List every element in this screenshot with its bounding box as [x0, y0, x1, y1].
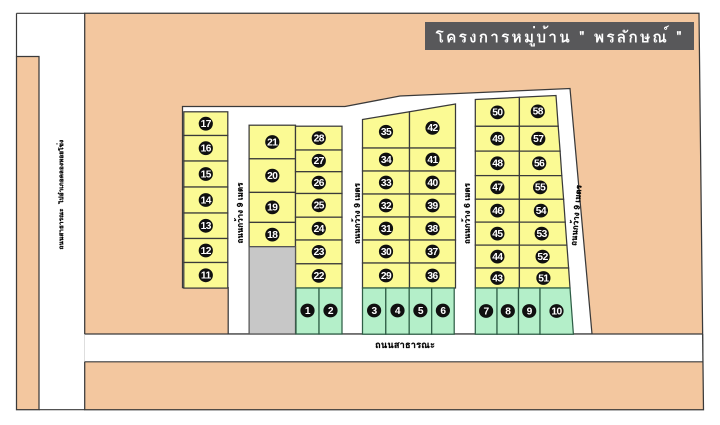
- svg-text:39: 39: [427, 201, 438, 212]
- svg-text:33: 33: [381, 178, 392, 189]
- svg-text:41: 41: [427, 155, 438, 166]
- svg-text:9: 9: [527, 306, 533, 317]
- svg-text:49: 49: [492, 134, 503, 145]
- svg-text:38: 38: [427, 224, 438, 235]
- svg-text:57: 57: [533, 134, 544, 145]
- svg-text:47: 47: [492, 183, 503, 194]
- svg-text:31: 31: [381, 224, 392, 235]
- svg-text:1: 1: [305, 306, 311, 317]
- svg-text:5: 5: [418, 306, 424, 317]
- svg-text:26: 26: [314, 178, 325, 189]
- svg-text:48: 48: [492, 159, 503, 170]
- svg-text:36: 36: [427, 271, 438, 282]
- svg-text:19: 19: [267, 203, 278, 214]
- svg-text:25: 25: [314, 201, 325, 212]
- svg-text:17: 17: [201, 119, 212, 130]
- svg-text:28: 28: [314, 133, 325, 144]
- svg-text:6: 6: [440, 306, 446, 317]
- svg-text:16: 16: [201, 144, 212, 155]
- svg-text:46: 46: [492, 206, 503, 217]
- svg-text:30: 30: [381, 247, 392, 258]
- svg-text:44: 44: [492, 252, 503, 263]
- svg-text:35: 35: [381, 127, 392, 138]
- svg-text:22: 22: [314, 271, 325, 282]
- svg-text:12: 12: [201, 246, 212, 257]
- svg-text:40: 40: [427, 178, 438, 189]
- svg-text:2: 2: [328, 306, 334, 317]
- svg-text:27: 27: [314, 156, 325, 167]
- svg-text:14: 14: [201, 195, 212, 206]
- svg-text:24: 24: [314, 224, 325, 235]
- svg-text:20: 20: [267, 171, 278, 182]
- svg-text:3: 3: [372, 306, 378, 317]
- svg-text:29: 29: [381, 271, 392, 282]
- svg-text:52: 52: [537, 252, 548, 263]
- svg-text:32: 32: [381, 201, 392, 212]
- svg-text:50: 50: [492, 108, 503, 119]
- svg-text:55: 55: [535, 183, 546, 194]
- svg-text:34: 34: [381, 155, 392, 166]
- svg-text:4: 4: [395, 306, 401, 317]
- svg-text:23: 23: [314, 247, 325, 258]
- svg-text:21: 21: [267, 137, 278, 148]
- svg-text:37: 37: [427, 247, 438, 258]
- svg-text:7: 7: [484, 306, 490, 317]
- svg-text:11: 11: [201, 271, 212, 282]
- svg-text:53: 53: [537, 229, 548, 240]
- svg-text:45: 45: [492, 229, 503, 240]
- svg-text:15: 15: [201, 169, 212, 180]
- svg-text:18: 18: [267, 230, 278, 241]
- svg-text:13: 13: [201, 221, 212, 232]
- svg-text:51: 51: [538, 273, 549, 284]
- svg-text:54: 54: [536, 206, 547, 217]
- svg-text:58: 58: [533, 107, 544, 118]
- svg-text:8: 8: [505, 306, 511, 317]
- svg-text:43: 43: [492, 273, 503, 284]
- svg-text:42: 42: [427, 123, 438, 134]
- svg-text:10: 10: [551, 306, 562, 317]
- svg-text:56: 56: [534, 159, 545, 170]
